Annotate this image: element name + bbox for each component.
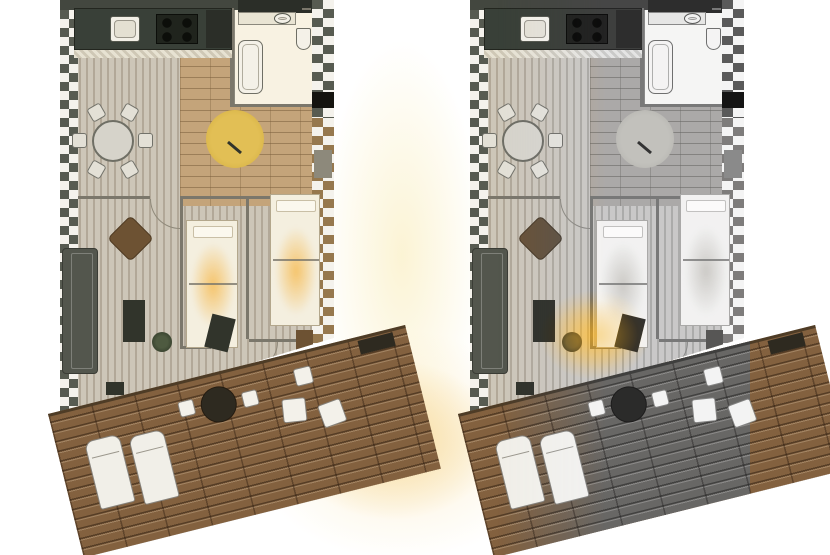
bed-divider <box>189 283 237 285</box>
floor-plan-image <box>0 0 830 555</box>
bed-pillow <box>193 226 233 238</box>
kitchen-fridge <box>616 10 642 48</box>
dining-chair <box>138 133 153 148</box>
kitchen-counter-hatch <box>74 50 232 58</box>
bed-pillow <box>686 200 726 212</box>
side-table <box>516 382 534 395</box>
bathroom-faucet-icon <box>302 8 311 10</box>
bedroom-wall-1 <box>590 199 593 349</box>
kitchen-fridge <box>206 10 232 48</box>
bathtub <box>238 40 263 94</box>
bed-pillow <box>603 226 643 238</box>
bathroom-sink <box>684 13 701 24</box>
bed-divider <box>683 259 729 261</box>
sun-lounger <box>494 433 546 510</box>
sun-lounger <box>84 433 136 510</box>
deck-chair <box>177 399 196 418</box>
round-area-rug <box>206 110 264 168</box>
bed-glow <box>685 227 727 315</box>
bed-divider <box>273 259 319 261</box>
bed-twin-2 <box>680 194 730 326</box>
dining-table <box>502 120 544 162</box>
dining-chair <box>482 133 497 148</box>
kitchen-stove <box>566 14 608 44</box>
hall-wall-left-segment <box>78 196 150 199</box>
floorplan-grayscale <box>470 0 750 555</box>
deck-chair <box>651 389 670 408</box>
bathroom-faucet-icon <box>712 8 721 10</box>
balcony-door <box>722 92 744 108</box>
hall-wall-left-segment <box>488 196 560 199</box>
round-area-rug <box>616 110 674 168</box>
bed-glow <box>275 227 317 315</box>
sofa <box>472 248 508 374</box>
sofa <box>62 248 98 374</box>
tv-cabinet <box>533 300 555 342</box>
deck-round-table <box>607 383 651 427</box>
deck-chair <box>241 389 260 408</box>
radiator <box>314 150 332 178</box>
bedroom-wall-2 <box>656 199 659 339</box>
dining-chair <box>72 133 87 148</box>
kitchen-sink <box>110 16 140 42</box>
deck-round-table <box>197 383 241 427</box>
radiator <box>724 150 742 178</box>
bedroom-wall-1 <box>180 199 183 349</box>
floorplan-color-base-layer <box>60 0 340 555</box>
toilet <box>706 28 721 50</box>
bathroom-wall-bottom <box>644 104 726 107</box>
kitchen-stove <box>156 14 198 44</box>
deck-square-chair <box>317 398 348 429</box>
toilet <box>296 28 311 50</box>
potted-plant <box>562 332 582 352</box>
deck-square-chair <box>691 397 717 423</box>
bed-twin-2 <box>270 194 320 326</box>
deck-side-table <box>293 365 315 387</box>
bedroom-wall-2 <box>246 199 249 339</box>
bathroom-sink <box>274 13 291 24</box>
dining-chair <box>548 133 563 148</box>
deck-side-table <box>703 365 725 387</box>
side-table <box>106 382 124 395</box>
kitchen-sink <box>520 16 550 42</box>
deck-chair <box>587 399 606 418</box>
balcony-door <box>312 92 334 108</box>
sun-lounger <box>128 429 180 506</box>
kitchen-counter-hatch <box>484 50 642 58</box>
floorplan-grayscale-gray-layer <box>470 0 750 555</box>
deck-square-chair <box>281 397 307 423</box>
tv-cabinet <box>123 300 145 342</box>
sun-lounger <box>538 429 590 506</box>
bathroom-wall-bottom <box>234 104 316 107</box>
bathtub <box>648 40 673 94</box>
bed-divider <box>599 283 647 285</box>
dining-table <box>92 120 134 162</box>
potted-plant <box>152 332 172 352</box>
bed-pillow <box>276 200 316 212</box>
floorplan-color <box>60 0 340 555</box>
